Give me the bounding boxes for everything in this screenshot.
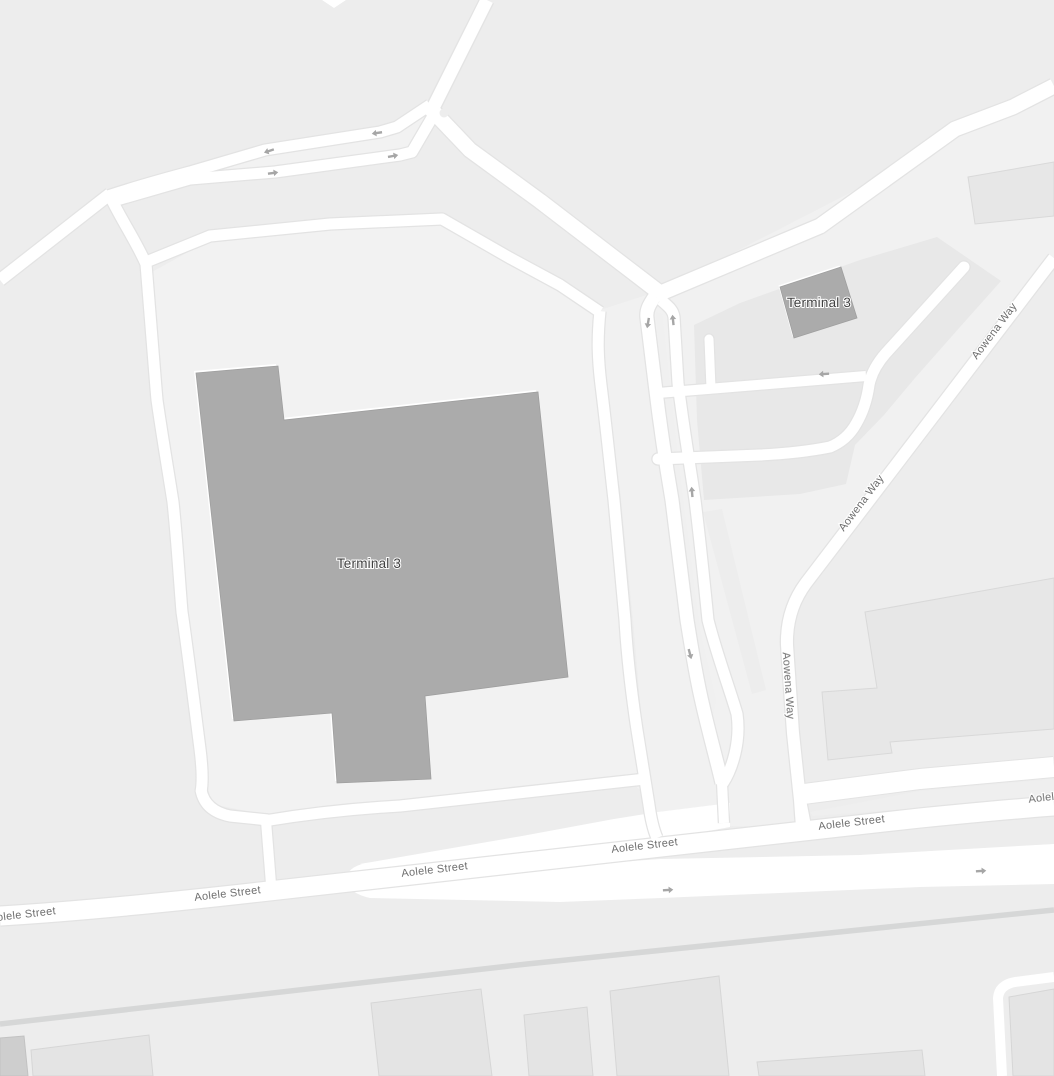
svg-text:Terminal 3: Terminal 3 xyxy=(337,556,401,571)
svg-text:Terminal 3: Terminal 3 xyxy=(787,295,851,310)
